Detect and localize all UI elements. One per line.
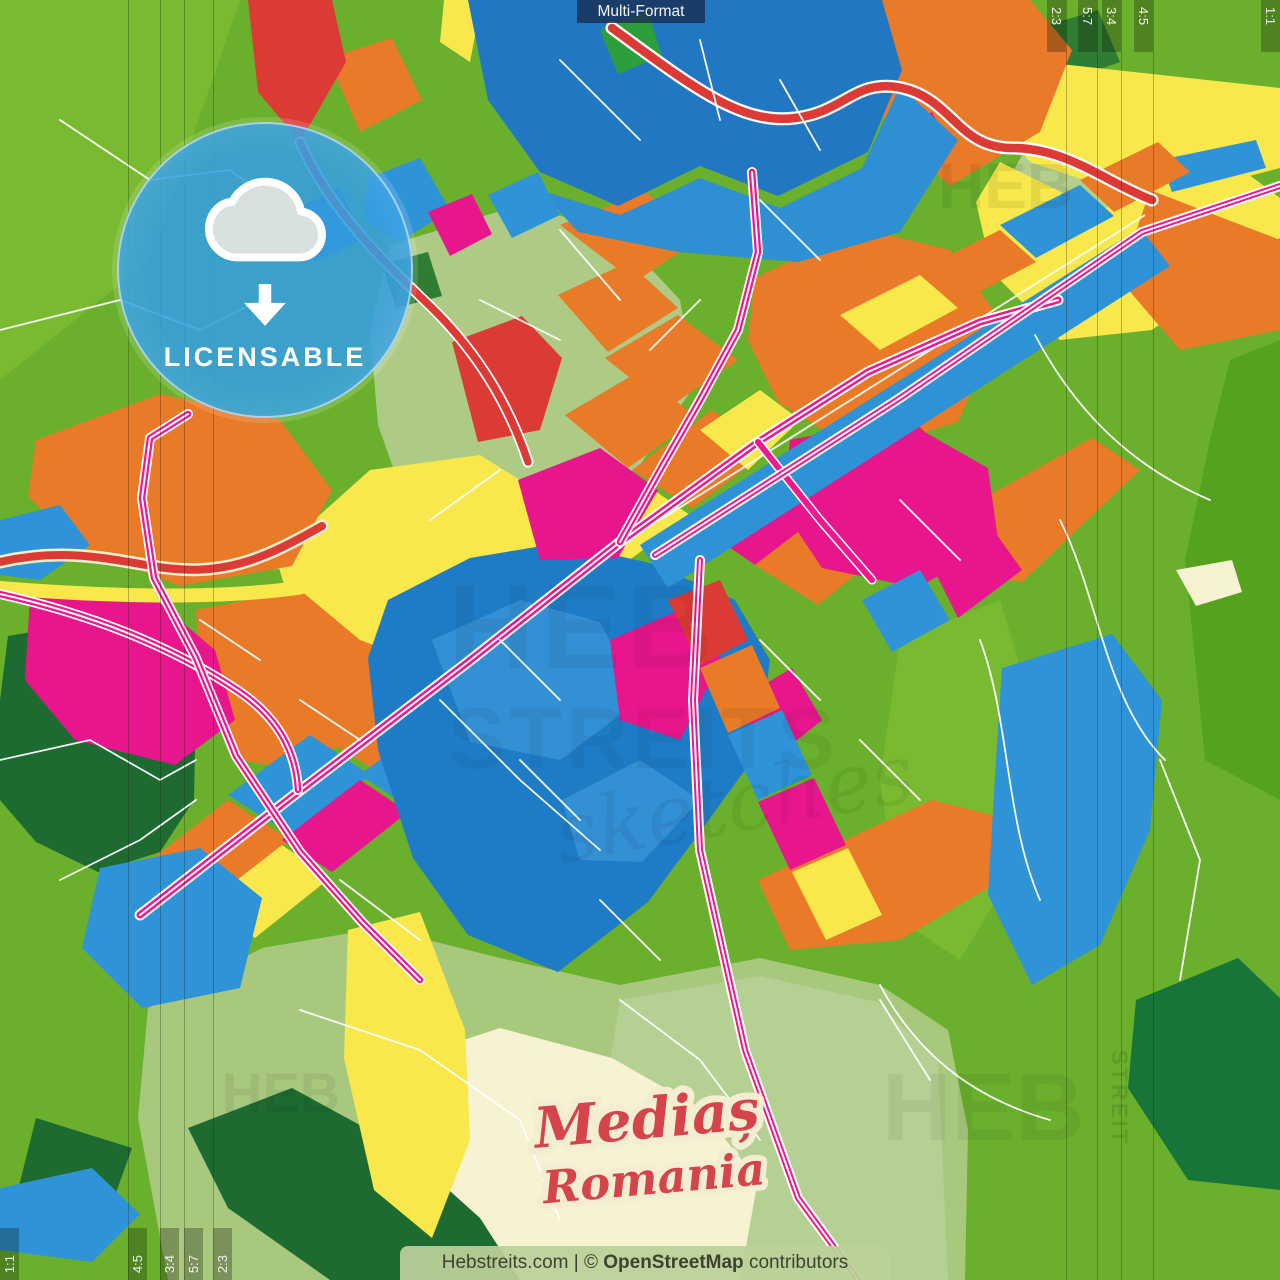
crop-guide-line: [1097, 0, 1098, 1280]
crop-guide-line: [128, 0, 129, 1280]
watermark-text: HEB: [882, 1054, 1085, 1161]
ratio-label-3-4: 3:4: [160, 1228, 179, 1280]
ratio-label-5-7: 5:7: [1078, 0, 1097, 52]
crop-guide-line: [1066, 0, 1067, 1280]
ratio-label-5-7: 5:7: [184, 1228, 203, 1280]
download-arrow-icon: [240, 282, 290, 328]
ratio-label-2-3: 2:3: [213, 1228, 232, 1280]
cloud-download-icon: [192, 162, 338, 280]
watermark-text: HEB: [938, 150, 1073, 222]
watermark-text: HEB: [222, 1061, 340, 1124]
map-title: Mediaș Romania: [520, 1072, 780, 1242]
crop-guide-line: [1121, 0, 1122, 1280]
attribution-osm-link[interactable]: OpenStreetMap: [603, 1252, 743, 1273]
attribution-site: Hebstreits.com | ©: [442, 1252, 603, 1273]
licensable-badge[interactable]: LICENSABLE: [117, 122, 413, 418]
ratio-label-2-3: 2:3: [1047, 0, 1066, 52]
attribution-suffix: contributors: [744, 1252, 849, 1273]
ratio-label-1-1: 1:1: [1261, 0, 1280, 52]
ratio-label-3-4: 3:4: [1102, 0, 1121, 52]
format-chip: Multi-Format: [577, 0, 705, 23]
ratio-label-1-1: 1:1: [0, 1228, 19, 1280]
crop-guide-line: [1153, 0, 1154, 1280]
ratio-label-4-5: 4:5: [1134, 0, 1153, 52]
watermark-text: STREIT: [1107, 1050, 1132, 1146]
attribution-bar: Hebstreits.com | © OpenStreetMap contrib…: [400, 1246, 890, 1280]
badge-label: LICENSABLE: [164, 342, 367, 373]
watermark-text: HEB: [448, 560, 719, 694]
ratio-label-4-5: 4:5: [128, 1228, 147, 1280]
map-product-preview: HEB STREITS sketches HEB HEB HEB STREIT …: [0, 0, 1280, 1280]
